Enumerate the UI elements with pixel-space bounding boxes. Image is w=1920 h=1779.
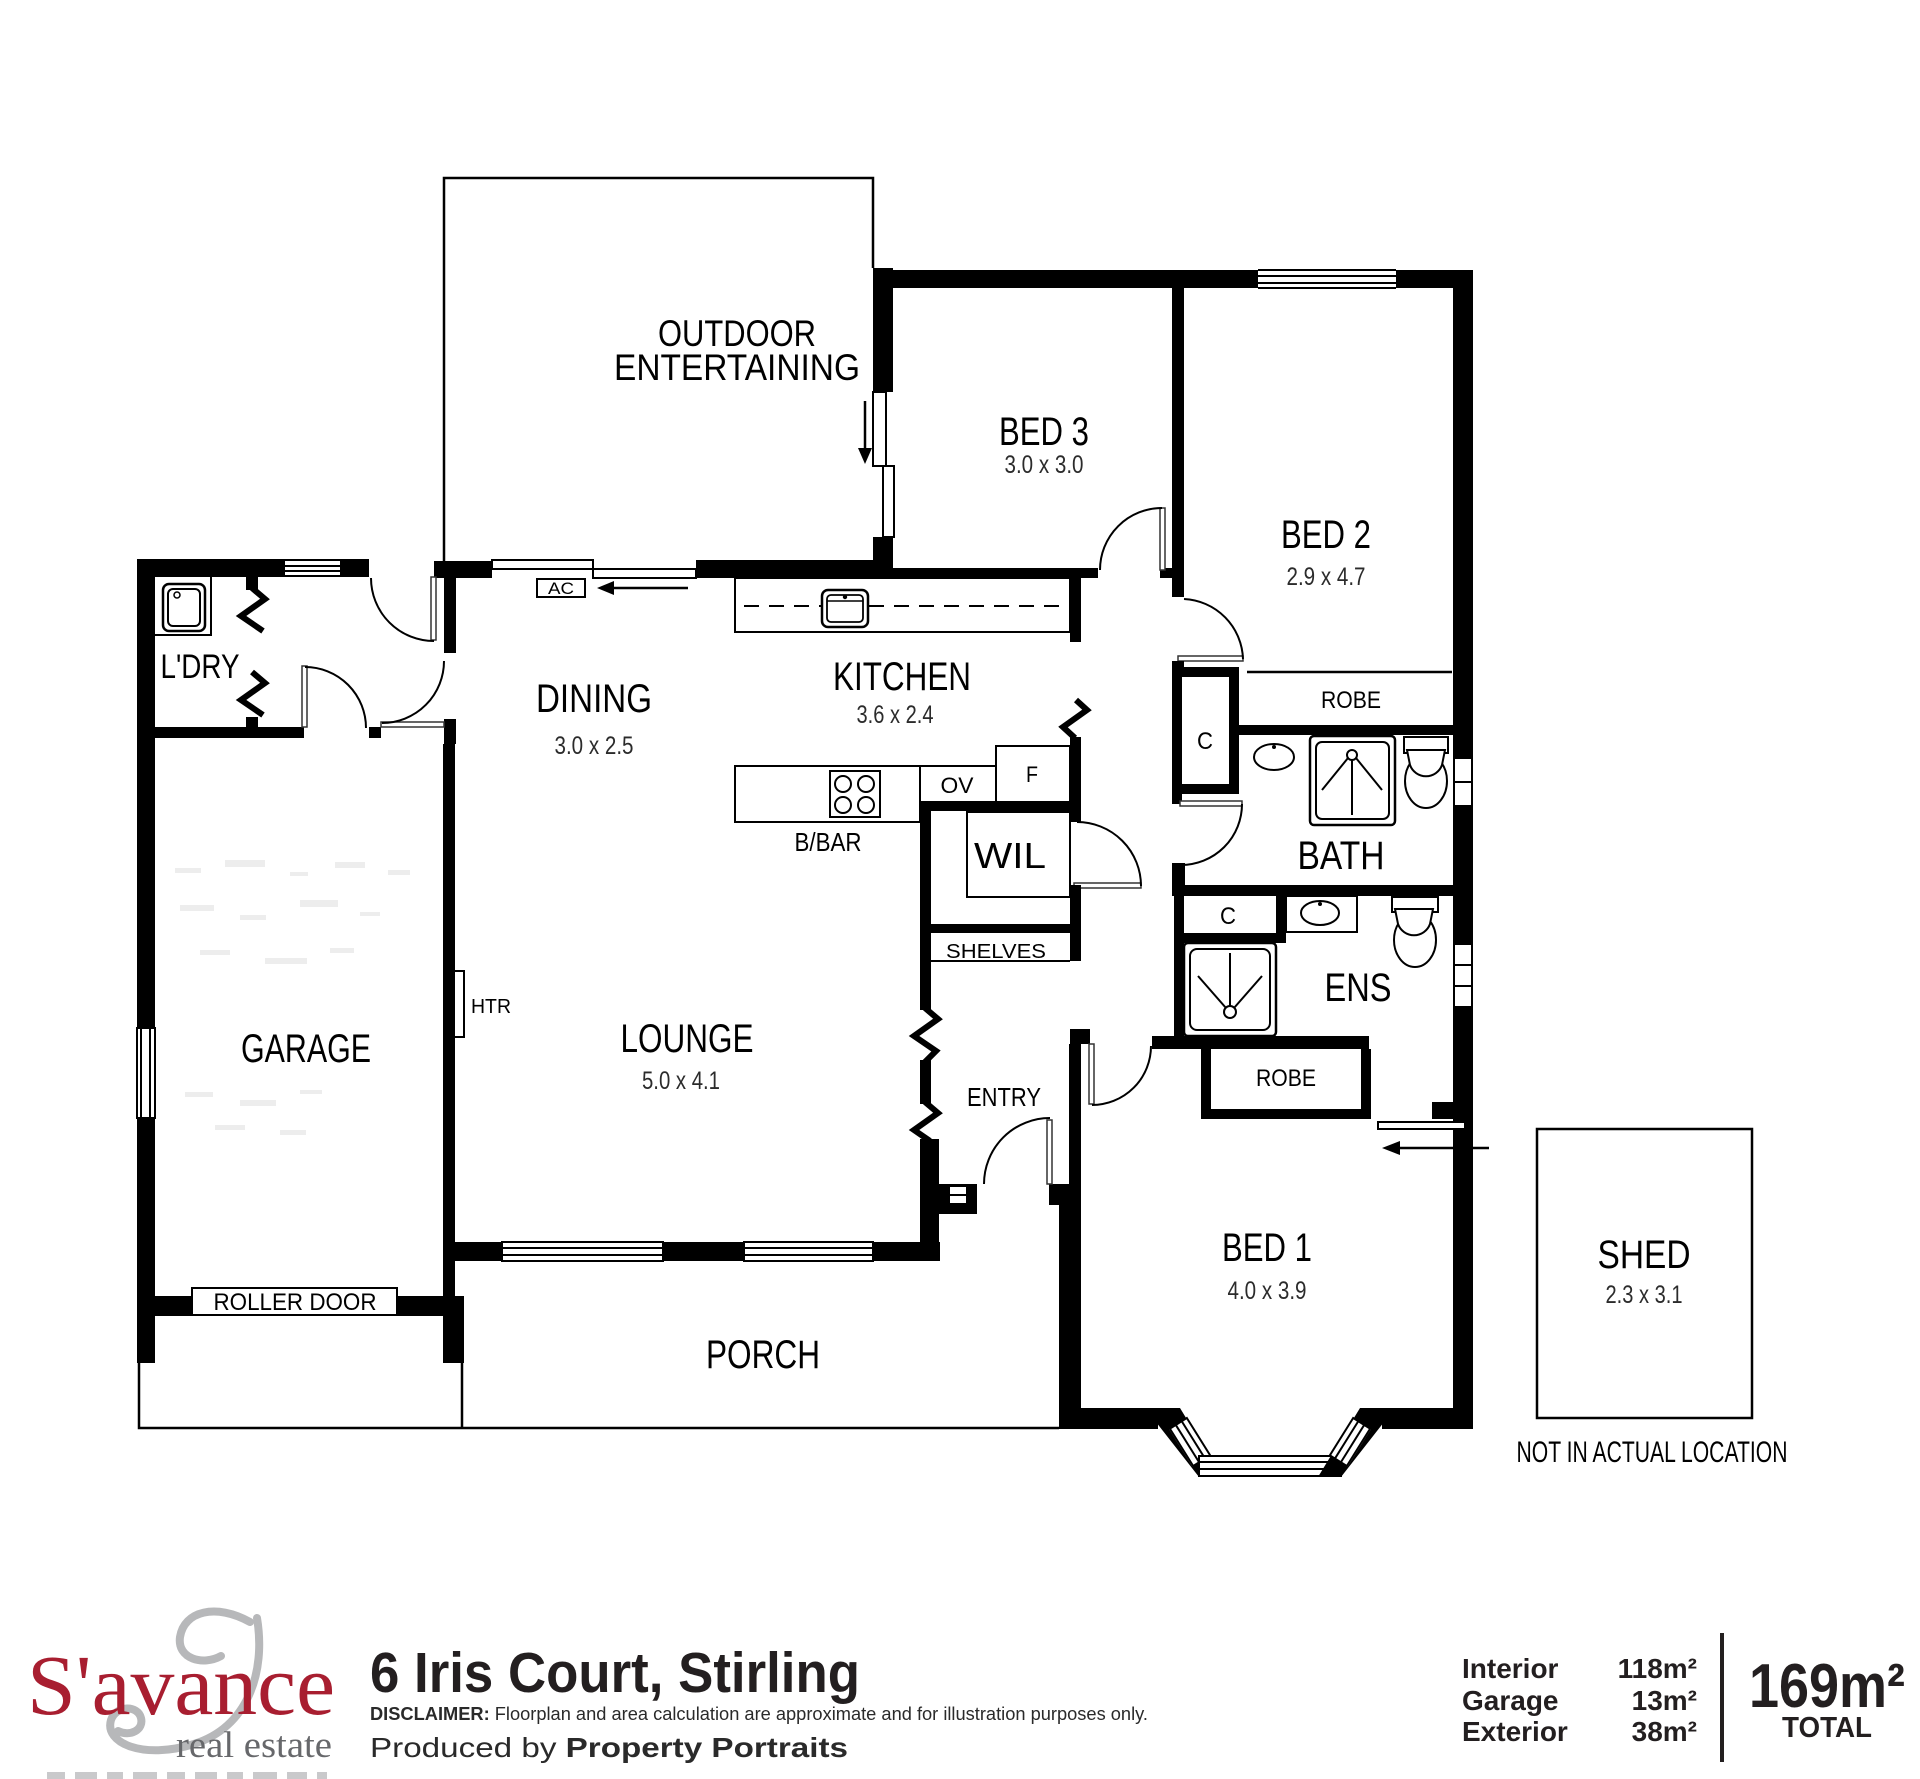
svg-text:118m²: 118m²: [1618, 1653, 1697, 1684]
svg-text:3.0 x 3.0: 3.0 x 3.0: [1005, 451, 1084, 479]
svg-text:BED 3: BED 3: [999, 410, 1089, 454]
svg-text:L'DRY: L'DRY: [161, 648, 240, 686]
svg-text:BED 2: BED 2: [1281, 513, 1371, 557]
svg-text:2.9 x 4.7: 2.9 x 4.7: [1287, 563, 1366, 591]
svg-text:ROBE: ROBE: [1256, 1065, 1316, 1092]
svg-text:ENTERTAINING: ENTERTAINING: [614, 347, 860, 388]
svg-text:TOTAL: TOTAL: [1782, 1712, 1872, 1744]
svg-text:Produced by Property Portraits: Produced by Property Portraits: [370, 1732, 848, 1763]
svg-text:169m²: 169m²: [1749, 1652, 1905, 1721]
svg-text:ROLLER DOOR: ROLLER DOOR: [214, 1289, 377, 1316]
svg-text:3.0 x 2.5: 3.0 x 2.5: [555, 732, 634, 760]
svg-text:OV: OV: [941, 773, 974, 798]
svg-text:3.6 x 2.4: 3.6 x 2.4: [857, 701, 934, 729]
svg-text:DINING: DINING: [536, 677, 652, 721]
svg-text:LOUNGE: LOUNGE: [621, 1017, 754, 1061]
svg-text:ROBE: ROBE: [1321, 687, 1381, 714]
svg-text:ENTRY: ENTRY: [967, 1082, 1041, 1112]
svg-text:KITCHEN: KITCHEN: [833, 655, 971, 699]
svg-text:Exterior: Exterior: [1462, 1716, 1568, 1747]
svg-text:5.0 x 4.1: 5.0 x 4.1: [642, 1067, 720, 1095]
svg-text:B/BAR: B/BAR: [795, 827, 862, 857]
svg-text:F: F: [1026, 762, 1038, 787]
svg-text:Interior: Interior: [1462, 1653, 1559, 1684]
svg-text:DISCLAIMER: Floorplan and area: DISCLAIMER: Floorplan and area calculati…: [370, 1704, 1148, 1724]
svg-text:BATH: BATH: [1298, 834, 1385, 878]
svg-text:BED 1: BED 1: [1222, 1226, 1312, 1270]
svg-text:4.0 x 3.9: 4.0 x 3.9: [1228, 1277, 1307, 1305]
svg-text:S'avance: S'avance: [27, 1637, 335, 1733]
svg-text:C: C: [1197, 728, 1213, 755]
svg-text:ENS: ENS: [1325, 966, 1392, 1010]
svg-text:6 Iris Court, Stirling: 6 Iris Court, Stirling: [370, 1641, 860, 1705]
svg-text:C: C: [1220, 903, 1236, 930]
svg-text:Garage: Garage: [1462, 1685, 1559, 1716]
svg-text:real estate: real estate: [176, 1725, 332, 1766]
svg-text:HTR: HTR: [471, 996, 511, 1018]
svg-text:AC: AC: [548, 579, 574, 598]
svg-text:13m²: 13m²: [1632, 1685, 1697, 1716]
svg-text:GARAGE: GARAGE: [241, 1027, 371, 1071]
svg-text:38m²: 38m²: [1632, 1716, 1697, 1747]
svg-text:2.3 x 3.1: 2.3 x 3.1: [1606, 1281, 1683, 1309]
svg-text:NOT IN ACTUAL LOCATION: NOT IN ACTUAL LOCATION: [1517, 1436, 1788, 1469]
svg-text:PORCH: PORCH: [706, 1333, 820, 1377]
svg-text:WIL: WIL: [974, 835, 1046, 876]
svg-text:SHELVES: SHELVES: [946, 941, 1046, 963]
svg-text:SHED: SHED: [1598, 1233, 1691, 1277]
